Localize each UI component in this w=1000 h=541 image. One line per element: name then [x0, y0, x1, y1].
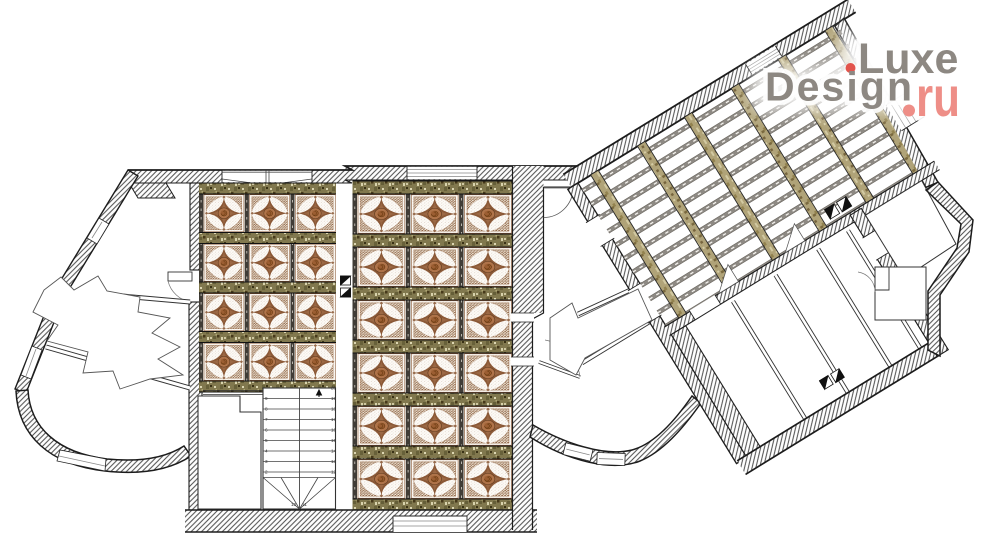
svg-text:Design: Design	[765, 64, 912, 110]
svg-text:20: 20	[331, 386, 337, 391]
svg-text:16: 16	[331, 428, 337, 433]
svg-text:11: 11	[302, 502, 307, 507]
svg-text:5: 5	[265, 438, 268, 443]
svg-text:13: 13	[331, 459, 337, 464]
svg-text:15: 15	[331, 438, 337, 443]
svg-text:8: 8	[265, 407, 268, 412]
svg-text:4: 4	[265, 449, 268, 454]
svg-text:14: 14	[331, 449, 337, 454]
svg-text:7: 7	[265, 417, 268, 422]
svg-text:ru: ru	[916, 65, 960, 128]
svg-text:10: 10	[291, 502, 297, 507]
svg-text:17: 17	[331, 417, 337, 422]
svg-text:12: 12	[331, 470, 337, 475]
svg-text:6: 6	[265, 428, 268, 433]
svg-text:19: 19	[331, 396, 337, 401]
svg-text:18: 18	[331, 407, 337, 412]
svg-text:9: 9	[265, 396, 268, 401]
svg-text:3: 3	[265, 459, 268, 464]
svg-text:2: 2	[265, 470, 268, 475]
